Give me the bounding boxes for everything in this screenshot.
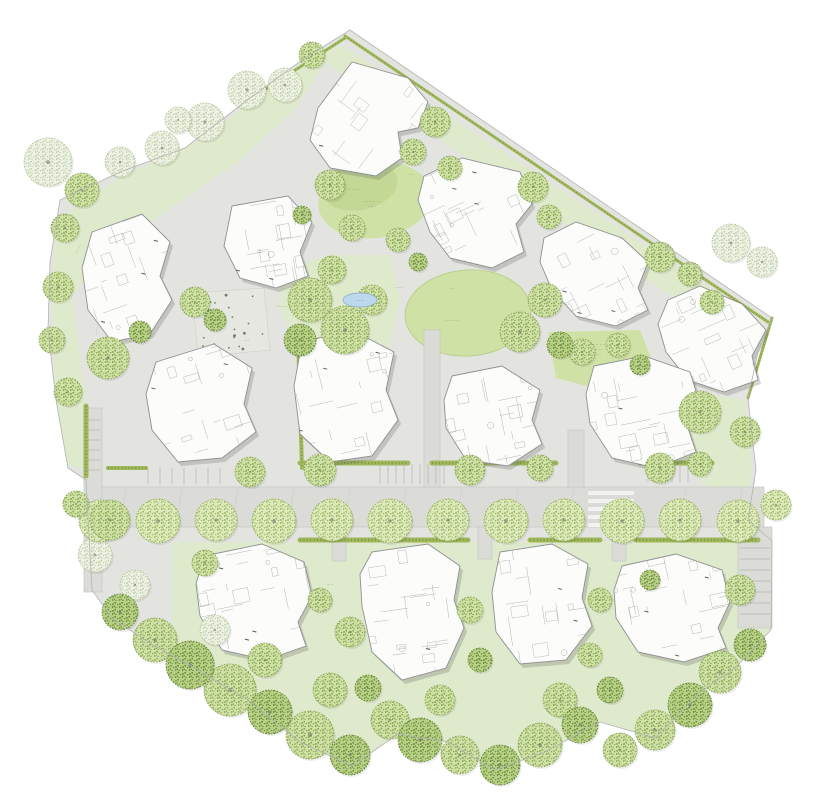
tree-p (712, 224, 752, 264)
tree-g (603, 733, 639, 769)
micro-label: ········· ··· (363, 200, 381, 204)
planting-dot (202, 345, 204, 347)
planting-dot (214, 302, 216, 304)
planting-dot (228, 307, 230, 309)
micro-label: ······ (395, 286, 403, 290)
crosswalk-stripe (588, 491, 634, 495)
planting-dot (225, 294, 228, 297)
planting-dot (203, 337, 205, 339)
micro-label: ······ (593, 353, 601, 357)
micro-label: ······· (355, 299, 365, 303)
planting-dot (252, 295, 254, 297)
micro-label: ······· (95, 325, 100, 335)
micro-label: ···· ····· (345, 188, 359, 192)
planting-dot (232, 316, 234, 318)
path-east-north (568, 430, 584, 487)
tree-p (228, 71, 268, 111)
planting-dot (238, 346, 240, 348)
tree-d (668, 683, 714, 729)
tree-p (747, 247, 779, 279)
micro-label: ·········· (445, 319, 459, 323)
site-plan-canvas: Residential quarter site plan ···· ·····… (0, 0, 835, 800)
micro-label: ···· (449, 287, 454, 291)
micro-label: ········ (277, 305, 288, 309)
tree-p (24, 138, 74, 188)
micro-label: ········· (591, 348, 603, 352)
micro-label: ····· (327, 583, 334, 587)
planting-dot (241, 348, 244, 351)
planting-dot (233, 334, 236, 337)
planting-dot (233, 337, 235, 339)
planting-dot (248, 323, 250, 325)
site-plan: Residential quarter site plan ···· ·····… (0, 0, 835, 800)
planting-dot (228, 347, 230, 349)
micro-label: ····· (409, 173, 416, 177)
micro-label: ······· ···· (589, 343, 605, 347)
tree-s (761, 490, 793, 522)
planting-dot (243, 332, 246, 335)
micro-label: ····· (244, 339, 251, 343)
tree-p (165, 107, 193, 135)
planting-dot (262, 333, 264, 335)
micro-label: ······ (368, 205, 376, 209)
tree-p (105, 147, 137, 179)
planting-dot (234, 329, 236, 331)
